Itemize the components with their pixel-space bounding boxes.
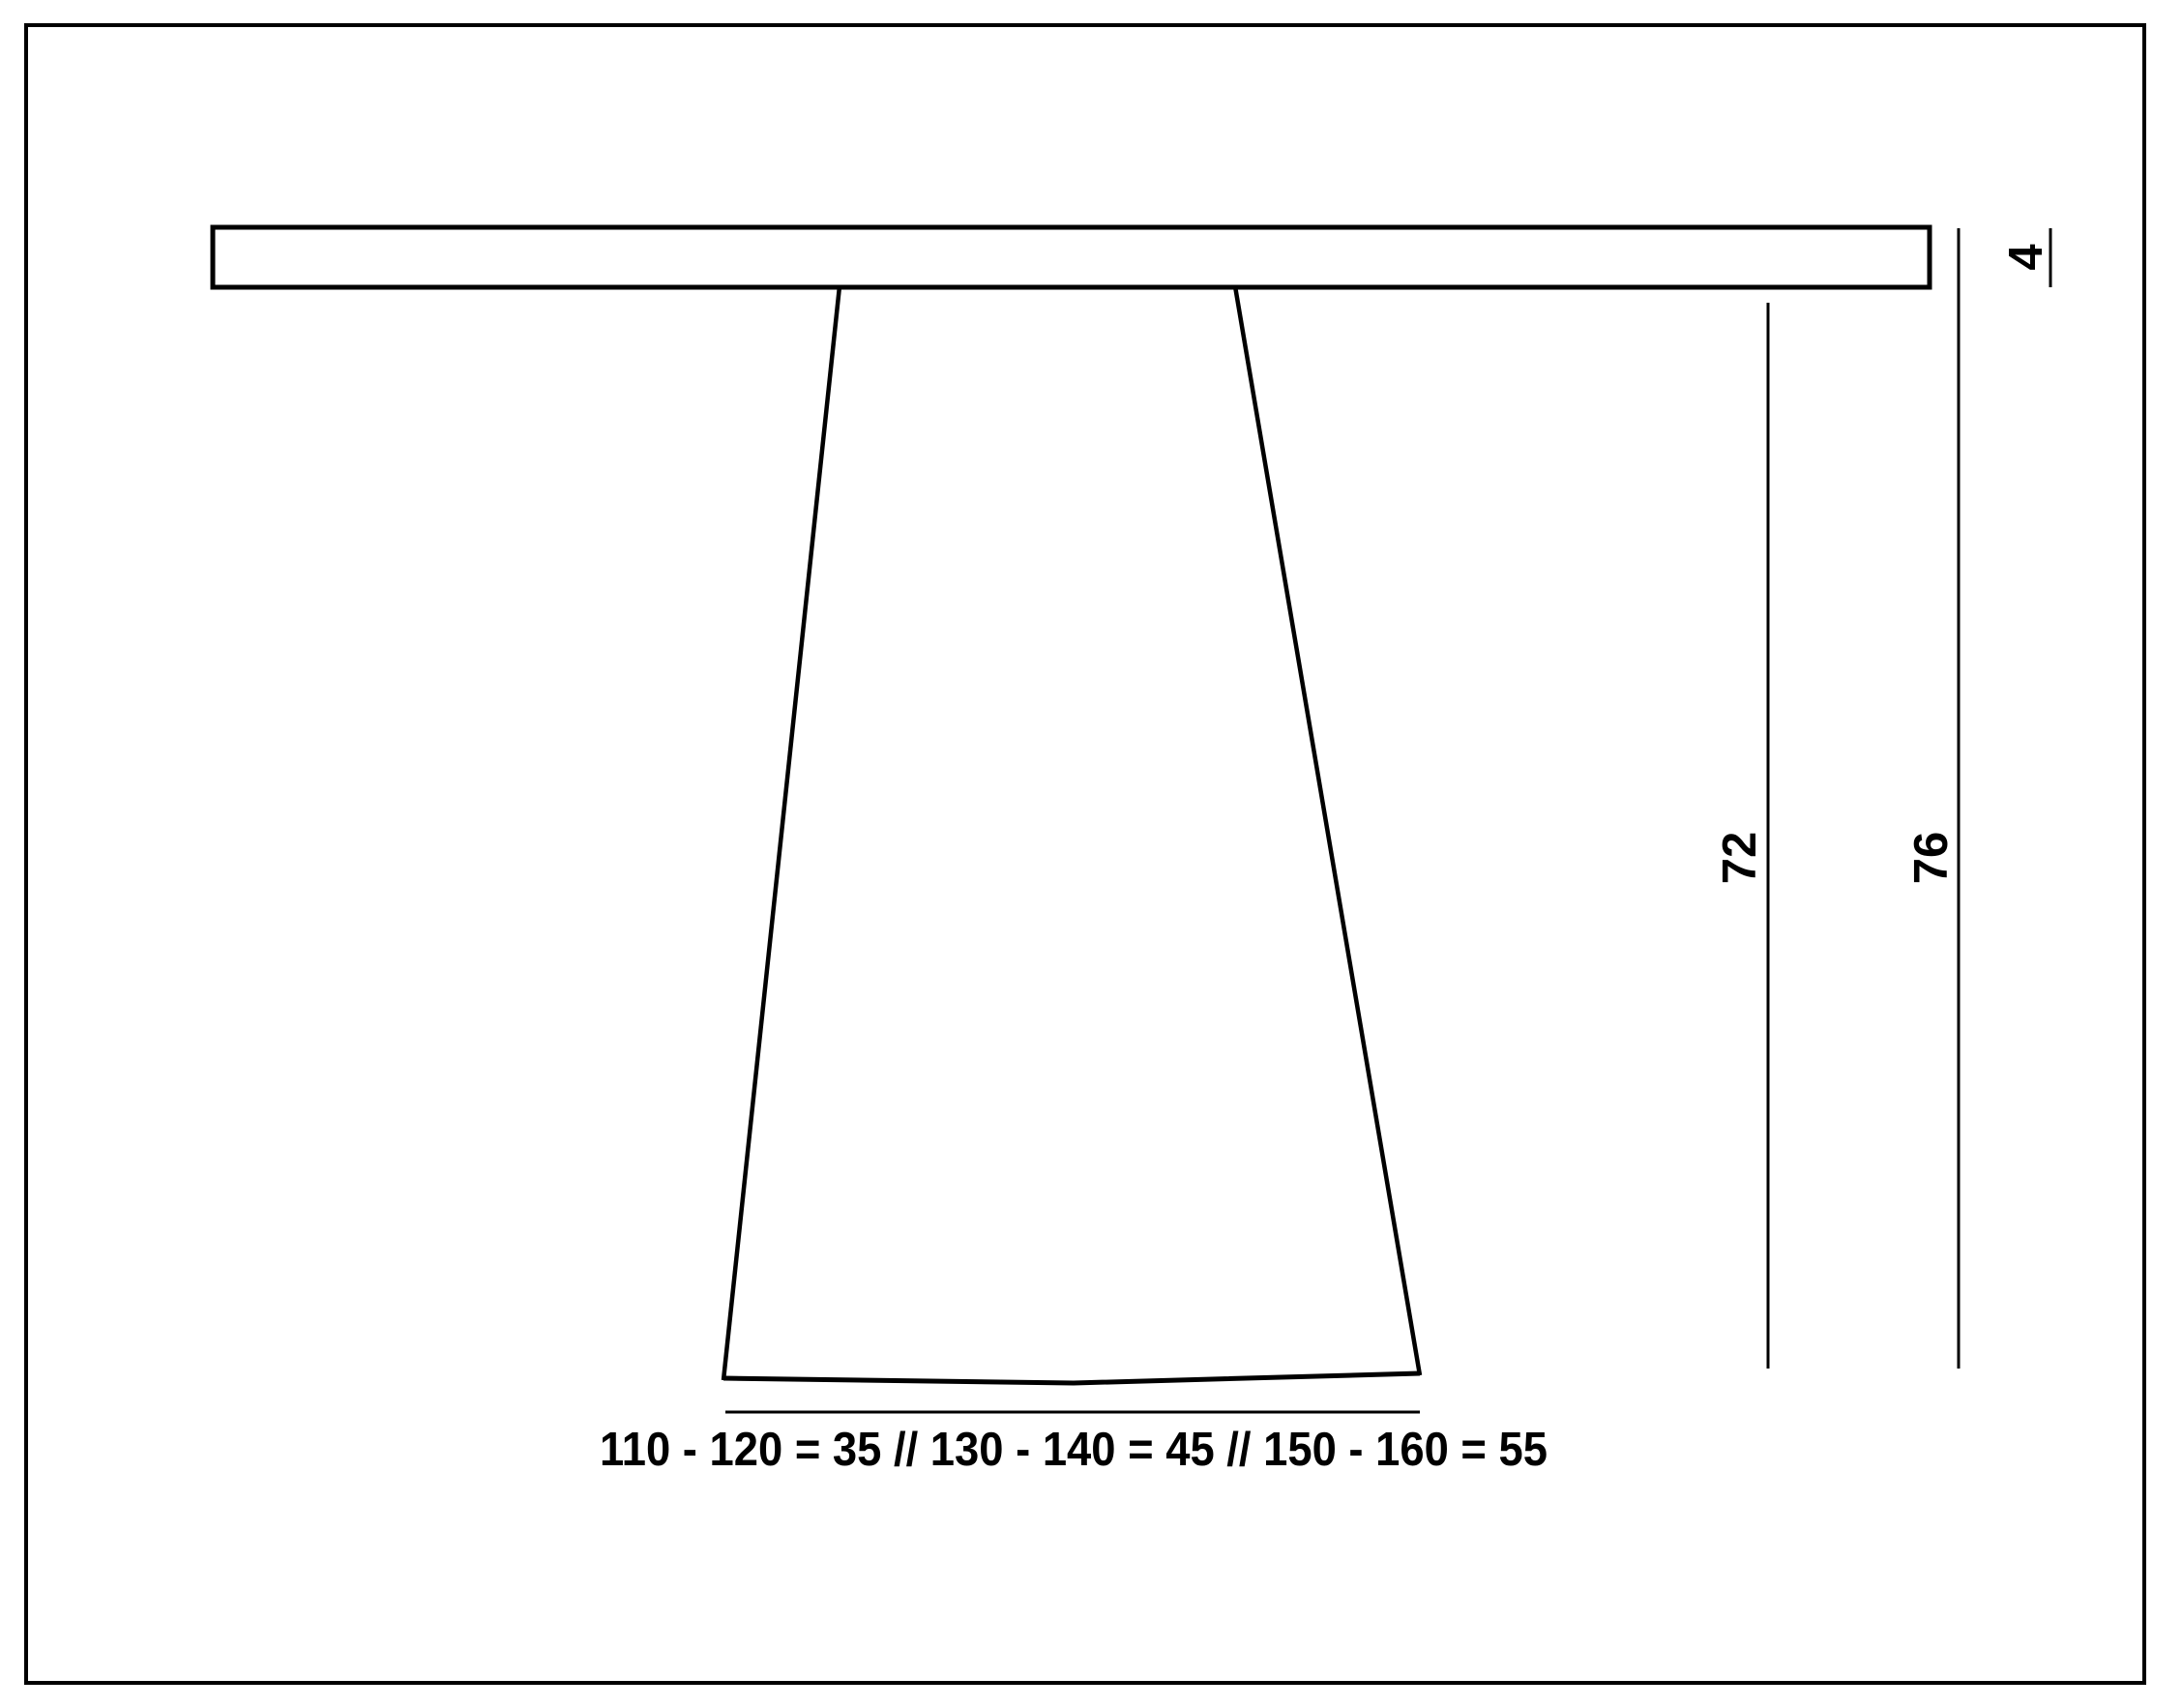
pedestal-left-edge [723,286,840,1380]
pedestal-base-edge [723,1373,1420,1383]
top-thickness-label: 4 [2000,244,2052,270]
pedestal-height-label: 72 [1714,832,1766,885]
drawing-canvas: 72 76 4 110 - 120 = 35 // 130 - 140 = 45… [0,0,2182,1708]
tabletop [213,227,1930,287]
base-widths-label: 110 - 120 = 35 // 130 - 140 = 45 // 150 … [600,1424,1548,1476]
total-height-label: 76 [1905,832,1958,885]
table-dimension-diagram: 72 76 4 110 - 120 = 35 // 130 - 140 = 45… [0,0,2182,1708]
pedestal-right-edge [1235,286,1420,1375]
